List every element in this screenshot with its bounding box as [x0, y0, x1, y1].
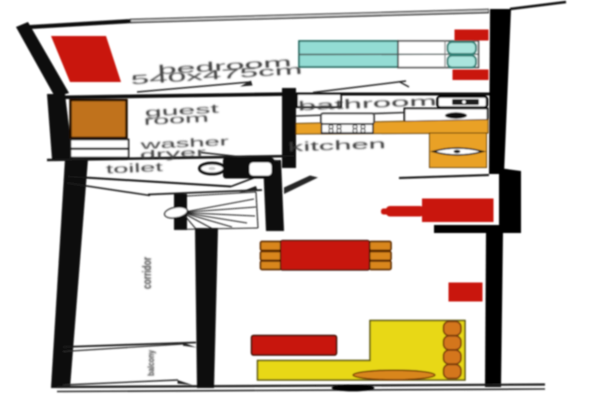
svg-text:balcony: balcony [146, 349, 157, 376]
svg-text:corridor: corridor [142, 257, 154, 289]
svg-text:dryer: dryer [140, 145, 207, 162]
svg-text:toilet: toilet [106, 162, 165, 177]
